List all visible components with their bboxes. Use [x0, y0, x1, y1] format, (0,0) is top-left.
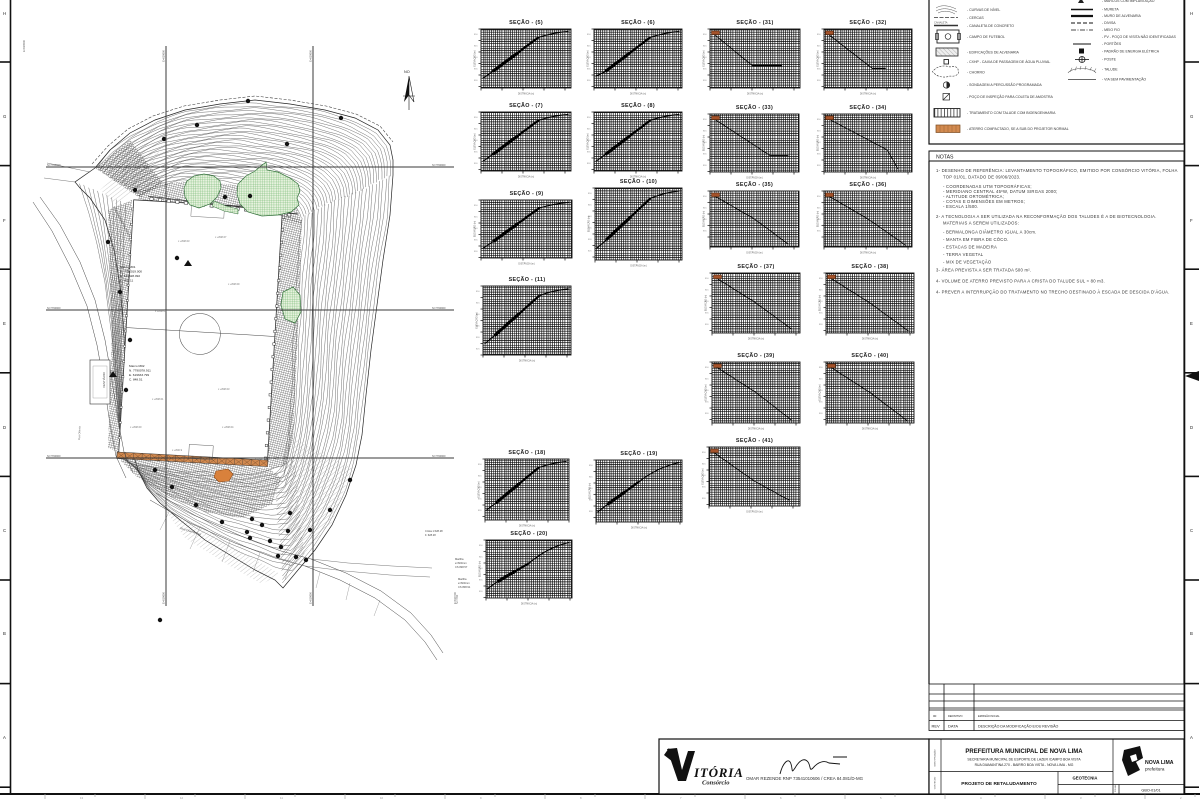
svg-text:ELEVAÇÃO (m): ELEVAÇÃO (m)	[478, 481, 481, 498]
svg-text:SEÇÃO - (39): SEÇÃO - (39)	[737, 352, 774, 359]
svg-text:DISTÂNCIA (m): DISTÂNCIA (m)	[748, 428, 764, 431]
svg-text:ELEVAÇÃO (m): ELEVAÇÃO (m)	[817, 135, 820, 152]
svg-text:Marilha: Marilha	[458, 577, 467, 581]
svg-text:D: D	[3, 425, 6, 430]
svg-text:B: B	[3, 631, 6, 636]
svg-text:F: F	[3, 218, 6, 223]
svg-text:REV: REV	[932, 724, 941, 729]
svg-text:ELEVAÇÃO (m): ELEVAÇÃO (m)	[817, 50, 820, 67]
svg-text:3- ÁREA PREVISTA A SER TRATAD: 3- ÁREA PREVISTA A SER TRATADA 500 m².	[936, 268, 1031, 273]
svg-text:SEÇÃO - (9): SEÇÃO - (9)	[510, 190, 544, 197]
svg-text:- MURETA: - MURETA	[1102, 8, 1119, 12]
svg-text:x +848.03: x +848.03	[218, 387, 230, 391]
svg-text:00: 00	[933, 714, 937, 718]
svg-text:4- VOLUME DE ATERRO PREVISTO: 4- VOLUME DE ATERRO PREVISTO PARA A CRIS…	[936, 279, 1105, 284]
svg-text:SEÇÃO - (33): SEÇÃO - (33)	[736, 104, 773, 111]
svg-text:- ESCALA 1/500.: - ESCALA 1/500.	[943, 204, 978, 209]
svg-text:SEÇÃO - (6): SEÇÃO - (6)	[621, 19, 655, 26]
svg-text:10: 10	[380, 796, 384, 800]
svg-text:x +848.01: x +848.01	[152, 397, 164, 401]
svg-text:Marco M02: Marco M02	[129, 364, 145, 368]
svg-text:SEÇÃO - (36): SEÇÃO - (36)	[849, 181, 886, 188]
svg-text:ELEVAÇÃO (m): ELEVAÇÃO (m)	[703, 211, 706, 228]
svg-text:SEÇÃO - (19): SEÇÃO - (19)	[620, 450, 657, 457]
svg-text:OMAR REZENDE RNP 7354101060: OMAR REZENDE RNP 73541010606 / CREA 84.0…	[746, 776, 864, 781]
svg-text:Crista 1.528.28: Crista 1.528.28	[425, 529, 443, 533]
svg-text:VESTIÁRIO: VESTIÁRIO	[102, 371, 106, 388]
svg-text:ELEVAÇÃO (m): ELEVAÇÃO (m)	[587, 50, 590, 67]
svg-text:DISTÂNCIA (m): DISTÂNCIA (m)	[631, 527, 647, 530]
svg-text:NO: NO	[404, 70, 410, 74]
svg-text:F: F	[1190, 218, 1193, 223]
svg-text:N=7790900: N=7790900	[432, 163, 446, 167]
svg-text:E. 619633.799: E. 619633.799	[129, 373, 149, 377]
svg-text:SEÇÃO - (8): SEÇÃO - (8)	[621, 102, 655, 109]
svg-text:- ESTACAS DE MADEIRA: - ESTACAS DE MADEIRA	[943, 245, 997, 250]
svg-text:- MURO DE ALVENARIA: - MURO DE ALVENARIA	[1102, 14, 1141, 18]
svg-text:E=619600: E=619600	[309, 49, 313, 61]
svg-text:12: 12	[180, 796, 184, 800]
svg-text:prefeitura: prefeitura	[1145, 767, 1165, 772]
svg-text:DISTÂNCIA (m): DISTÂNCIA (m)	[862, 338, 878, 341]
svg-text:x +848.04: x +848.04	[222, 425, 234, 429]
svg-text:DISTÂNCIA (m): DISTÂNCIA (m)	[630, 93, 646, 96]
svg-text:DISTÂNCIA (m): DISTÂNCIA (m)	[521, 603, 537, 606]
svg-text:DATA: DATA	[948, 724, 958, 729]
svg-text:DISTÂNCIA (m): DISTÂNCIA (m)	[746, 511, 762, 514]
svg-text:13: 13	[80, 796, 84, 800]
svg-text:- CAMPO DE FUTEBOL: - CAMPO DE FUTEBOL	[967, 35, 1005, 39]
svg-text:E=619600: E=619600	[162, 592, 166, 604]
svg-text:SEÇÃO - (11): SEÇÃO - (11)	[509, 276, 546, 283]
svg-text:E: E	[3, 321, 6, 326]
svg-text:ELEVAÇÃO (m): ELEVAÇÃO (m)	[703, 50, 706, 67]
svg-text:E=619500: E=619500	[22, 39, 26, 51]
svg-text:DISTÂNCIA (m): DISTÂNCIA (m)	[518, 263, 534, 266]
svg-text:ELEVAÇÃO (m): ELEVAÇÃO (m)	[817, 211, 820, 228]
svg-text:DISTÂNCIA (m): DISTÂNCIA (m)	[748, 338, 764, 341]
svg-text:N. 7791019.000: N. 7791019.000	[120, 270, 142, 274]
svg-text:CONTEÚDO: CONTEÚDO	[934, 776, 937, 789]
svg-text:GBO-01/01: GBO-01/01	[1141, 789, 1160, 793]
svg-text:e=600mm: e=600mm	[458, 581, 470, 585]
svg-text:DISTÂNCIA (m): DISTÂNCIA (m)	[860, 93, 876, 96]
svg-text:C: C	[1190, 528, 1193, 533]
svg-text:DISTÂNCIA (m): DISTÂNCIA (m)	[860, 177, 876, 180]
svg-text:11: 11	[280, 796, 283, 800]
svg-text:DISTÂNCIA (m): DISTÂNCIA (m)	[860, 252, 876, 255]
svg-text:SEÇÃO - (5): SEÇÃO - (5)	[509, 19, 543, 26]
svg-text:DISTÂNCIA (m): DISTÂNCIA (m)	[519, 360, 535, 363]
svg-text:4- PREVER A INTERRUPÇÃO DO TR: 4- PREVER A INTERRUPÇÃO DO TRATAMENTO NO…	[936, 290, 1170, 295]
svg-text:- TRATAMENTO COM TALUDE COM BI: - TRATAMENTO COM TALUDE COM BIOENGENHARI…	[967, 111, 1056, 115]
svg-text:F. 628.28: F. 628.28	[425, 533, 436, 537]
svg-text:- MEIO FIO: - MEIO FIO	[1102, 28, 1120, 32]
svg-text:DESCRIÇÃO DA MODIFICAÇÃO E/: DESCRIÇÃO DA MODIFICAÇÃO E/OU REVISÃO	[978, 724, 1058, 729]
svg-text:DISTÂNCIA (m): DISTÂNCIA (m)	[518, 176, 534, 179]
svg-text:x +846.9: x +846.9	[172, 448, 183, 452]
svg-text:- PADRÃO DE ENERGIA ELÉTRICA: - PADRÃO DE ENERGIA ELÉTRICA	[1102, 49, 1160, 54]
svg-text:MATERIAIS A SEREM UTILIZADOS:: MATERIAIS A SEREM UTILIZADOS:	[943, 221, 1019, 226]
svg-text:SEÇÃO - (31): SEÇÃO - (31)	[736, 19, 773, 26]
svg-text:SEÇÃO - (18): SEÇÃO - (18)	[508, 449, 545, 456]
svg-text:SECRETARIA MUNICIPAL DE ESP: SECRETARIA MUNICIPAL DE ESPORTE DE LAZER…	[967, 758, 1081, 762]
svg-text:E=619600: E=619600	[162, 49, 166, 61]
svg-text:ELEVAÇÃO (m): ELEVAÇÃO (m)	[589, 483, 592, 500]
svg-text:SEÇÃO - (38): SEÇÃO - (38)	[851, 263, 888, 270]
svg-text:SEÇÃO - (20): SEÇÃO - (20)	[510, 530, 547, 537]
svg-text:- POÇO DE INSPEÇÃO PARA COLETA: - POÇO DE INSPEÇÃO PARA COLETA DE AMOSTR…	[967, 94, 1053, 99]
svg-text:- MANTA EM FIBRA DE CÔCO.: - MANTA EM FIBRA DE CÔCO.	[943, 237, 1009, 242]
svg-text:ELEVAÇÃO (m): ELEVAÇÃO (m)	[474, 221, 477, 238]
svg-text:2- A TECNOLOGIA A SER UTILIZA: 2- A TECNOLOGIA A SER UTILIZADA NA RECON…	[936, 214, 1157, 219]
svg-text:ELEVAÇÃO (m): ELEVAÇÃO (m)	[705, 295, 708, 312]
svg-text:SEÇÃO - (7): SEÇÃO - (7)	[509, 102, 543, 109]
svg-text:x +848.00: x +848.00	[130, 425, 142, 429]
svg-text:N. 7790078.911: N. 7790078.911	[129, 369, 151, 373]
svg-text:Marilha: Marilha	[455, 557, 464, 561]
svg-text:PREFEITURA MUNICIPAL DE NOVA L: PREFEITURA MUNICIPAL DE NOVA LIMA	[965, 749, 1083, 755]
svg-text:N=7790: N=7790	[455, 594, 459, 604]
svg-text:DISTÂNCIA (m): DISTÂNCIA (m)	[862, 428, 878, 431]
svg-text:- ATERRO COMPACTADO, SE A SUB: - ATERRO COMPACTADO, SE A SUB DO PROJETO…	[967, 127, 1069, 131]
svg-text:SEÇÃO - (40): SEÇÃO - (40)	[851, 352, 888, 359]
svg-text:ELEVAÇÃO (m): ELEVAÇÃO (m)	[705, 384, 708, 401]
svg-text:E: E	[1190, 321, 1193, 326]
svg-text:N=7790900: N=7790900	[47, 163, 61, 167]
svg-text:A: A	[1190, 735, 1193, 740]
svg-text:- CXHP - CAIXA DE PASSAGEM DE: - CXHP - CAIXA DE PASSAGEM DE ÁGUA PLUVI…	[967, 60, 1050, 64]
svg-text:ELEVAÇÃO (m): ELEVAÇÃO (m)	[474, 50, 477, 67]
svg-text:DISTÂNCIA (m): DISTÂNCIA (m)	[747, 93, 763, 96]
svg-text:- CURVAS DE NÍVEL: - CURVAS DE NÍVEL	[967, 8, 1000, 12]
svg-text:SEÇÃO - (32): SEÇÃO - (32)	[849, 19, 886, 26]
svg-text:ELEVAÇÃO (m): ELEVAÇÃO (m)	[819, 295, 822, 312]
svg-text:H: H	[1190, 11, 1193, 16]
svg-text:- MIX DE VEGETAÇÃO: - MIX DE VEGETAÇÃO	[943, 260, 992, 265]
svg-text:- CANALETA DE CONCRETO: - CANALETA DE CONCRETO	[967, 24, 1014, 28]
svg-text:- VIA SEM PAVIMENTAÇÃO: - VIA SEM PAVIMENTAÇÃO	[1102, 77, 1146, 82]
svg-text:Consórcio: Consórcio	[702, 780, 730, 787]
svg-text:x +848.07: x +848.07	[215, 235, 227, 239]
svg-text:ELEVAÇÃO (m): ELEVAÇÃO (m)	[587, 133, 590, 150]
svg-text:TOP 01/01, DATADO DE 09/06/202: TOP 01/01, DATADO DE 09/06/2023.	[943, 175, 1021, 180]
svg-text:N=7790900: N=7790900	[432, 306, 446, 310]
svg-text:SEÇÃO - (10): SEÇÃO - (10)	[620, 178, 657, 185]
svg-text:e=600mm: e=600mm	[455, 561, 467, 565]
svg-text:N=7790900: N=7790900	[47, 454, 61, 458]
svg-text:DISTÂNCIA (m): DISTÂNCIA (m)	[630, 265, 646, 268]
svg-text:x +848.02: x +848.02	[155, 309, 167, 313]
svg-text:CANALETA: CANALETA	[934, 21, 948, 25]
svg-text:N=7790900: N=7790900	[432, 454, 446, 458]
svg-text:PROJETO DE RETALUDAMENTO: PROJETO DE RETALUDAMENTO	[961, 781, 1037, 787]
svg-text:- MARCOS COM IMPLANTAÇÃO: - MARCOS COM IMPLANTAÇÃO	[1102, 0, 1155, 3]
svg-text:CS 828.57: CS 828.57	[455, 565, 468, 569]
svg-text:Rua Oitenta: Rua Oitenta	[77, 426, 82, 441]
svg-text:- CERCAS: - CERCAS	[967, 16, 984, 20]
svg-text:- SONDAGEM A PERCUSSÃO PROGRAM: - SONDAGEM A PERCUSSÃO PROGRAMADA	[967, 82, 1042, 87]
svg-text:- BERMALONGA DIÂMETRO IGUAL A: - BERMALONGA DIÂMETRO IGUAL A 30cm.	[943, 230, 1037, 235]
svg-text:- EDIFICAÇÕES DE ALVENARIA: - EDIFICAÇÕES DE ALVENARIA	[967, 50, 1020, 55]
svg-text:ELEVAÇÃO (m): ELEVAÇÃO (m)	[476, 312, 479, 329]
svg-text:NOTAS: NOTAS	[936, 155, 954, 161]
svg-text:H: H	[3, 11, 6, 16]
svg-text:SEÇÃO - (35): SEÇÃO - (35)	[736, 181, 773, 188]
svg-text:Marco M01: Marco M01	[120, 265, 136, 269]
svg-text:GEOTECNIA: GEOTECNIA	[1073, 776, 1098, 781]
svg-text:ELEVAÇÃO (m): ELEVAÇÃO (m)	[588, 216, 591, 233]
svg-text:RUA DIAMANTINA 270 - BAIRR: RUA DIAMANTINA 270 - BAIRRO BOA VISTA - …	[975, 763, 1074, 767]
svg-text:ELEVAÇÃO (m): ELEVAÇÃO (m)	[479, 561, 482, 578]
svg-text:DISTÂNCIA (m): DISTÂNCIA (m)	[518, 93, 534, 96]
svg-text:NOVA LIMA: NOVA LIMA	[1145, 760, 1174, 766]
svg-text:x +846.74: x +846.74	[255, 457, 267, 461]
svg-text:ELEVAÇÃO (m): ELEVAÇÃO (m)	[474, 133, 477, 150]
svg-text:- CHORRO: - CHORRO	[967, 71, 985, 75]
svg-text:C. 848.51: C. 848.51	[129, 378, 143, 382]
svg-text:E. 619628.092: E. 619628.092	[120, 274, 140, 278]
svg-text:- TERRA VEGETAL: - TERRA VEGETAL	[943, 252, 984, 257]
svg-text:- PV - POÇO DE VISITA NÃO IDEN: - PV - POÇO DE VISITA NÃO IDENTIFICADAS	[1102, 34, 1177, 39]
svg-text:B: B	[1190, 631, 1193, 636]
svg-text:x +848.03: x +848.03	[178, 239, 190, 243]
svg-text:N=7790900: N=7790900	[47, 306, 61, 310]
svg-text:DEFINITIVO: DEFINITIVO	[948, 714, 963, 718]
svg-text:1- DESENHO DE REFERÊNCIA: LEV: 1- DESENHO DE REFERÊNCIA: LEVANTAMENTO T…	[936, 168, 1178, 173]
svg-text:- POSTE: - POSTE	[1102, 58, 1117, 62]
svg-text:D: D	[1190, 425, 1193, 430]
svg-text:C: C	[3, 528, 6, 533]
svg-text:- DIVISA: - DIVISA	[1102, 21, 1116, 25]
svg-text:DISTÂNCIA (m): DISTÂNCIA (m)	[746, 177, 762, 180]
svg-text:- PORTÕES: - PORTÕES	[1102, 41, 1122, 46]
svg-text:SEÇÃO - (41): SEÇÃO - (41)	[736, 437, 773, 444]
svg-text:E=619600: E=619600	[309, 592, 313, 604]
svg-text:ELEVAÇÃO (m): ELEVAÇÃO (m)	[702, 468, 705, 485]
svg-text:SEÇÃO - (37): SEÇÃO - (37)	[737, 263, 774, 270]
svg-text:ITÓRIA: ITÓRIA	[693, 765, 744, 780]
svg-text:IDENTIFICAÇÃO: IDENTIFICAÇÃO	[934, 749, 937, 766]
svg-text:CS 808.91: CS 808.91	[458, 585, 471, 589]
svg-text:DISTÂNCIA (m): DISTÂNCIA (m)	[746, 252, 762, 255]
svg-text:C. 853.11: C. 853.11	[120, 279, 133, 283]
svg-text:- TALUDE: - TALUDE	[1102, 68, 1118, 72]
svg-text:DISTÂNCIA (m): DISTÂNCIA (m)	[519, 525, 535, 528]
svg-text:FOLHA: FOLHA	[1114, 785, 1117, 792]
svg-text:SEÇÃO - (34): SEÇÃO - (34)	[849, 104, 886, 111]
svg-text:x +848.09: x +848.09	[228, 282, 240, 286]
svg-text:A: A	[3, 735, 6, 740]
svg-text:ELEVAÇÃO (m): ELEVAÇÃO (m)	[703, 135, 706, 152]
svg-text:ELEVAÇÃO (m): ELEVAÇÃO (m)	[819, 384, 822, 401]
